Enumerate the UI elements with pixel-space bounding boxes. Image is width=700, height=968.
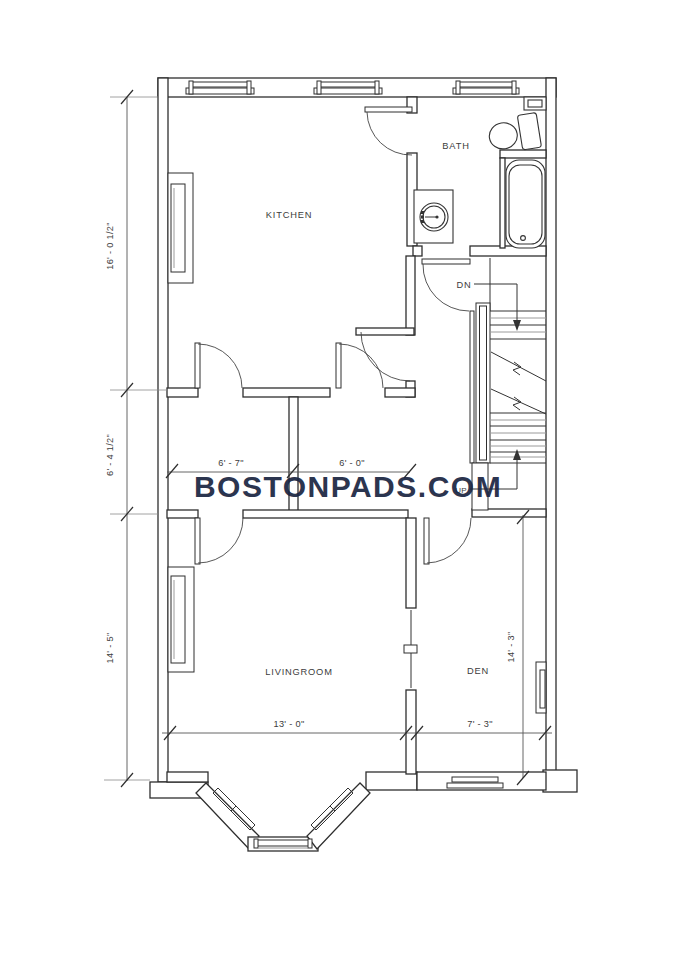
bath-fixtures — [414, 97, 546, 248]
floor-plan-page: 16' - 0 1/2" 6' - 4 1/2" 14' - 5" 6' - 7… — [0, 0, 700, 968]
kitchen-door-right — [336, 343, 383, 388]
window-kitchen-top-2 — [314, 80, 382, 96]
sink-icon — [414, 190, 453, 243]
kitchen-label: KITCHEN — [266, 210, 312, 220]
livingroom-label: LIVINGROOM — [265, 667, 332, 677]
den-door — [424, 518, 471, 564]
shelf-icon — [524, 97, 546, 110]
window-bath-top — [453, 80, 519, 96]
bay-window — [196, 783, 370, 851]
dim-hall-left: 6' - 7" — [218, 458, 244, 468]
top-windows — [186, 80, 519, 96]
window-den-right — [536, 662, 546, 713]
room-labels: KITCHEN BATH LIVINGROOM DEN DN UP — [265, 141, 489, 677]
bath-label: BATH — [442, 141, 469, 151]
bath-door — [365, 107, 412, 155]
dim-left-top: 16' - 0 1/2" — [105, 222, 115, 269]
livingroom-door — [195, 518, 243, 564]
window-den-bottom — [447, 774, 503, 788]
window-kitchen-top — [186, 80, 254, 96]
dim-bottom: 13' - 0" 7' - 3" — [162, 719, 552, 740]
dim-hall-right: 6' - 0" — [339, 458, 365, 468]
vestibule-door — [361, 332, 410, 381]
floor-plan: 16' - 0 1/2" 6' - 4 1/2" 14' - 5" 6' - 7… — [0, 0, 700, 968]
dim-left-middle: 6' - 4 1/2" — [105, 434, 115, 476]
toilet-icon — [487, 112, 542, 154]
dim-living-width: 13' - 0" — [274, 719, 305, 729]
bathtub-icon — [506, 160, 545, 248]
dim-left-bottom: 14' - 5" — [105, 633, 115, 664]
window-livingroom-left — [168, 567, 194, 672]
dim-den-height: 14' - 3" — [506, 510, 529, 785]
stairs-down-label: DN — [456, 280, 471, 290]
watermark: BOSTONPADS.COM — [194, 470, 502, 503]
kitchen-door-left — [195, 343, 242, 388]
window-kitchen-left — [168, 173, 193, 283]
den-label: DEN — [467, 666, 489, 676]
dim-den-width: 7' - 3" — [467, 719, 493, 729]
dim-den-height-text: 14' - 3" — [506, 632, 516, 663]
